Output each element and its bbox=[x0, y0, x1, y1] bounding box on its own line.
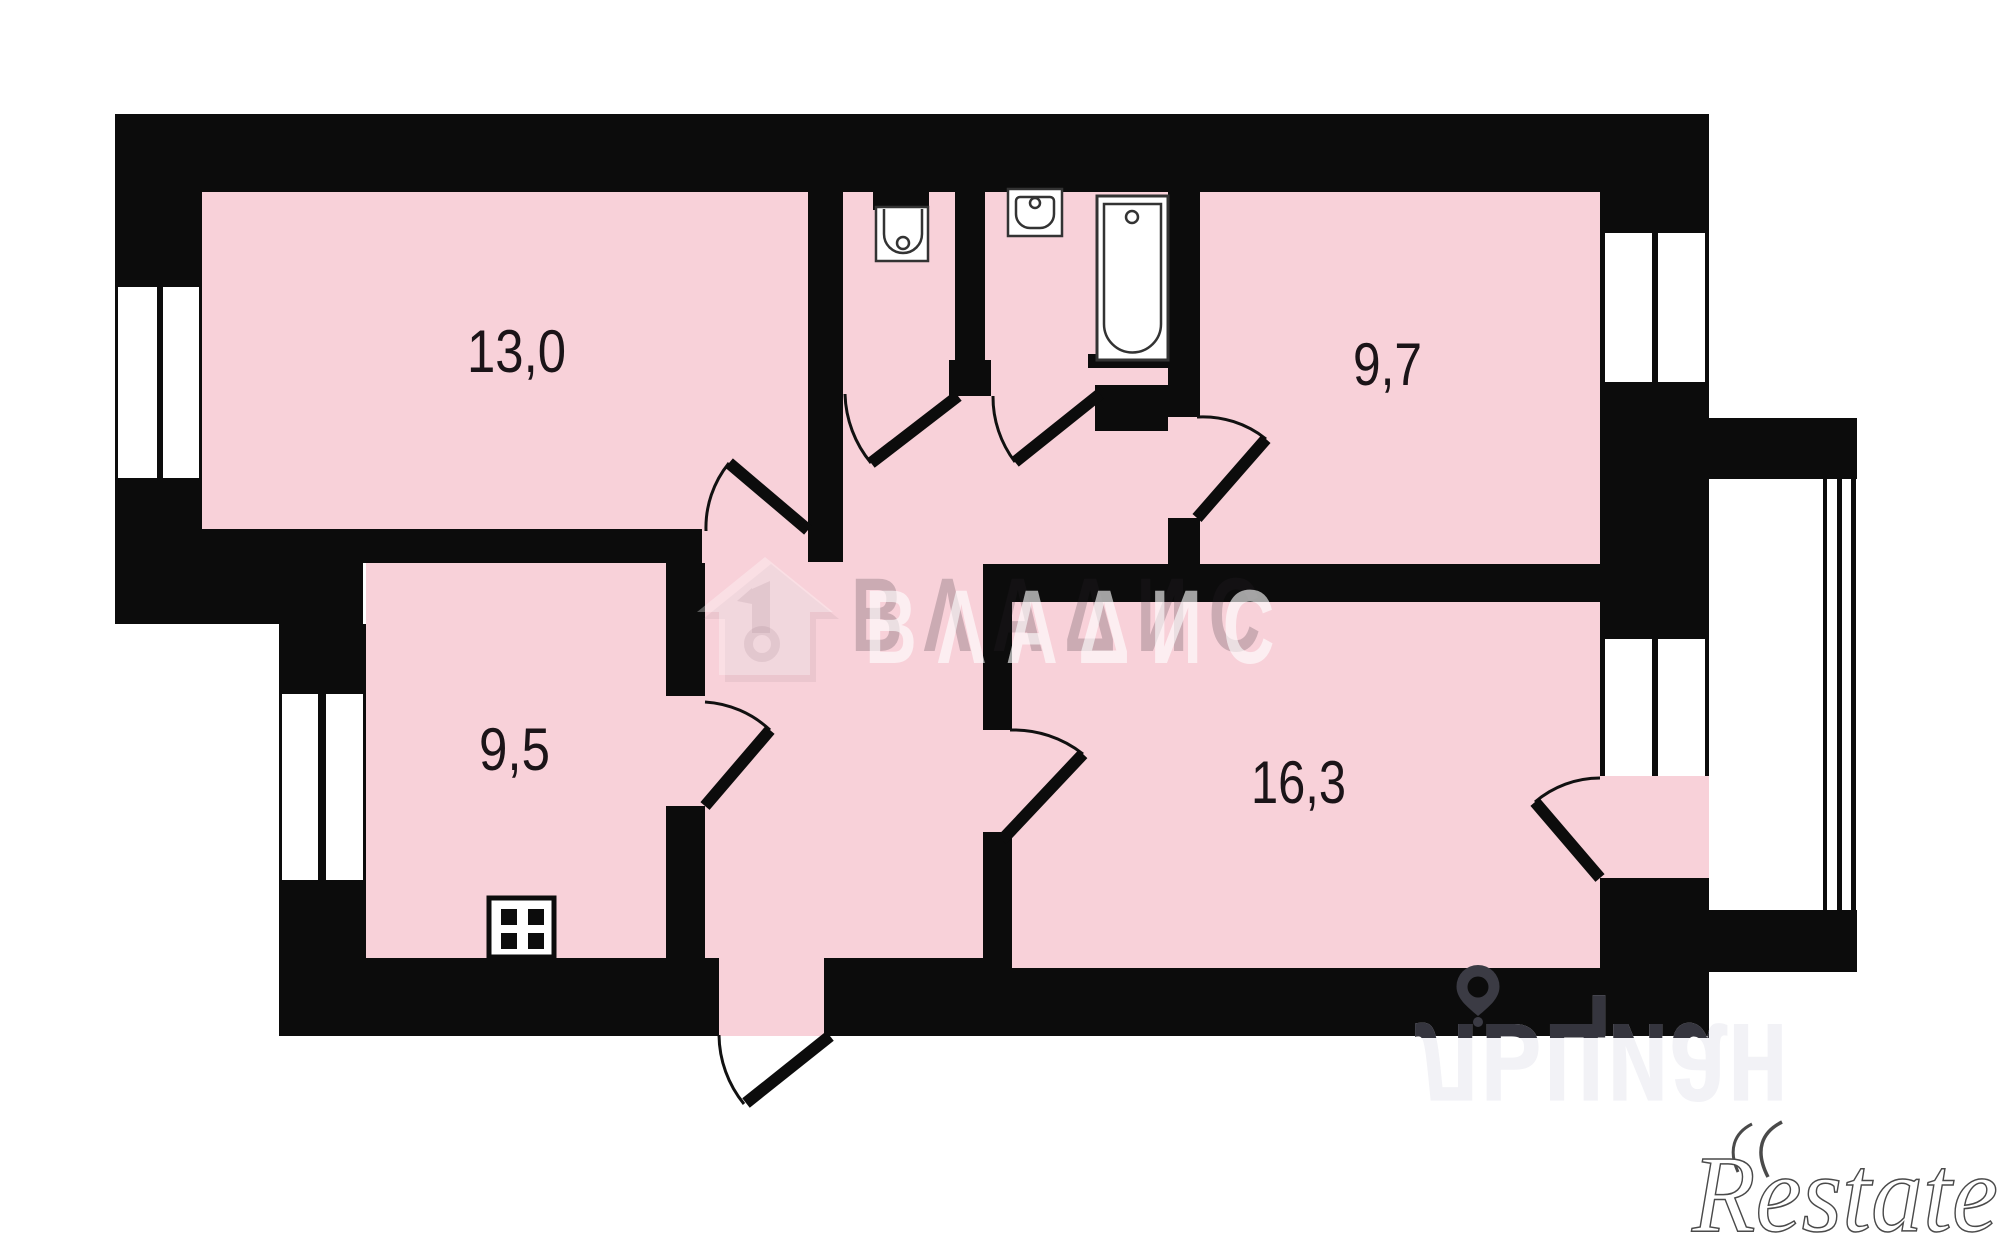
svg-text:9,7: 9,7 bbox=[1353, 331, 1422, 398]
svg-text:13,0: 13,0 bbox=[467, 318, 566, 385]
svg-text:9,5: 9,5 bbox=[479, 716, 550, 783]
svg-text:16,3: 16,3 bbox=[1251, 749, 1346, 816]
svg-text:Restate: Restate bbox=[1691, 1133, 1998, 1235]
svg-text:ВΛАΔИС: ВΛАΔИС bbox=[865, 569, 1295, 686]
